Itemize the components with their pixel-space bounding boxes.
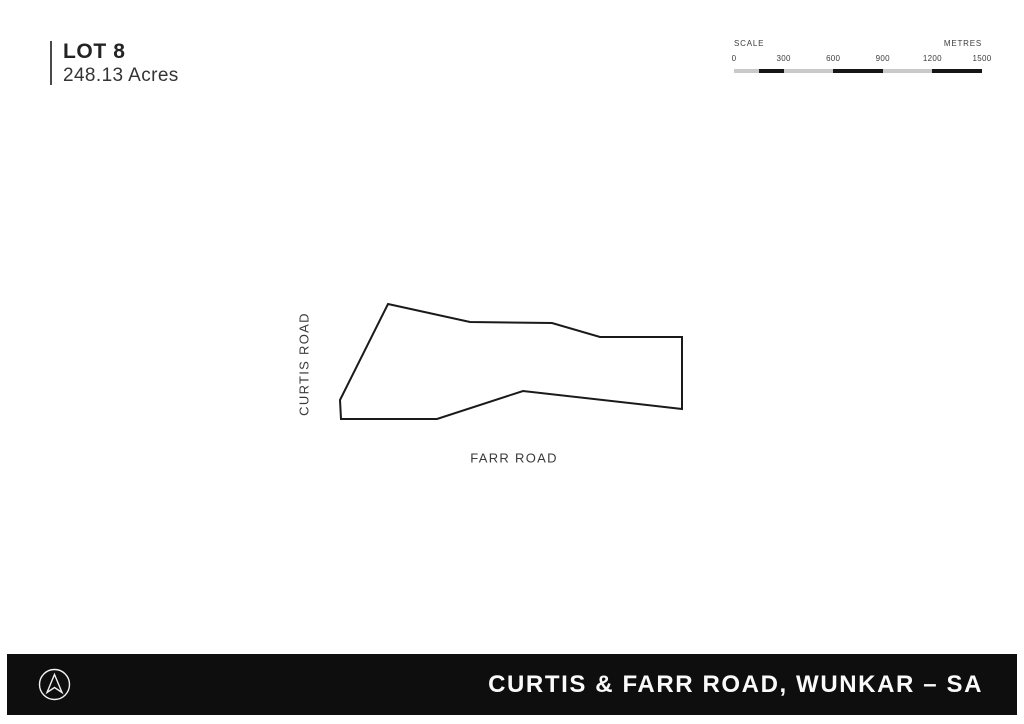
scale-units-label: METRES <box>944 40 982 48</box>
scale-tick: 300 <box>776 54 790 63</box>
lot-boundary-polygon <box>340 304 682 419</box>
lot-title-block: LOT 8 248.13 Acres <box>50 41 179 85</box>
scale-bar <box>734 69 982 73</box>
scale-tick: 0 <box>732 54 737 63</box>
scale-tick: 1200 <box>923 54 942 63</box>
scale-label: SCALE <box>734 40 764 48</box>
title-divider-rule <box>50 41 52 85</box>
map-scale: SCALE METRES 0 300 600 900 1200 1500 <box>734 40 982 73</box>
scale-tick: 1500 <box>973 54 992 63</box>
scale-bar-segment <box>833 69 883 73</box>
lot-area: 248.13 Acres <box>63 66 179 85</box>
scale-tick: 600 <box>826 54 840 63</box>
road-label-farr: FARR ROAD <box>470 451 558 466</box>
scale-bar-segment <box>734 69 759 73</box>
lot-plan: /* stroke set below */ <box>330 290 700 430</box>
property-address: CURTIS & FARR ROAD, WUNKAR – SA <box>488 671 983 699</box>
lot-number: LOT 8 <box>63 41 179 62</box>
scale-tick-labels: 0 300 600 900 1200 1500 <box>734 54 982 63</box>
road-label-curtis: CURTIS ROAD <box>297 312 312 416</box>
footer-bar: CURTIS & FARR ROAD, WUNKAR – SA <box>7 654 1017 715</box>
scale-tick: 900 <box>876 54 890 63</box>
north-arrow-icon <box>38 668 71 701</box>
scale-bar-segment <box>759 69 784 73</box>
scale-bar-segment <box>784 69 834 73</box>
scale-bar-segment <box>883 69 933 73</box>
scale-bar-segment <box>932 69 982 73</box>
